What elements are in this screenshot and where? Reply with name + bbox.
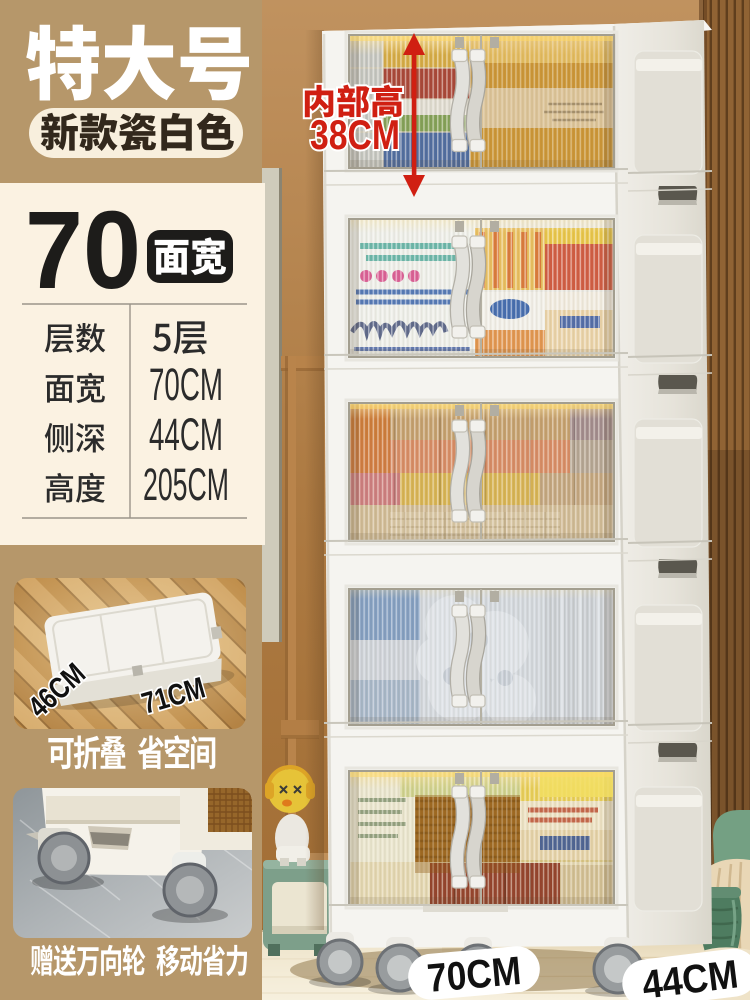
svg-text:205CM: 205CM — [143, 459, 229, 510]
svg-text:70CM: 70CM — [149, 359, 223, 410]
svg-text:70CM: 70CM — [425, 949, 522, 1000]
svg-text:44CM: 44CM — [149, 409, 223, 460]
svg-text:38CM: 38CM — [310, 111, 400, 158]
svg-text:70: 70 — [25, 189, 141, 312]
